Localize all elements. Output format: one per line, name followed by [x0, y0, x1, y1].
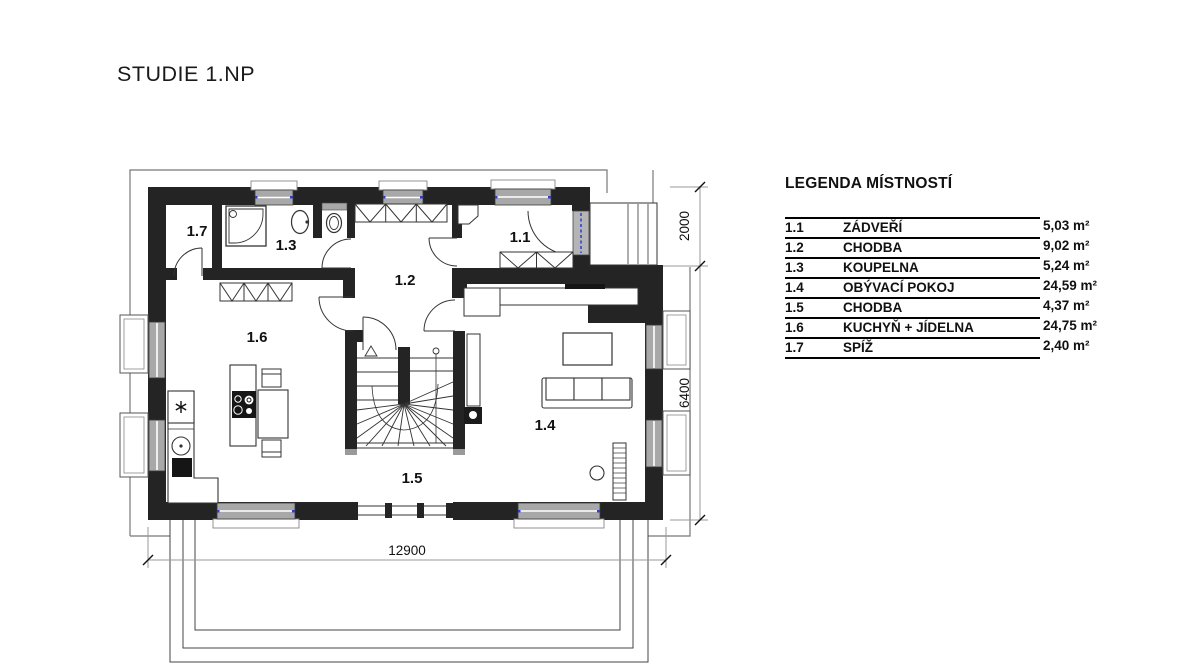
handrail-post	[433, 348, 439, 354]
corner-cabinet	[458, 205, 478, 224]
legend-row: 1.1 ZÁDVEŘÍ 5,03 m²	[785, 217, 1107, 237]
room-area: 5,24 m²	[1040, 257, 1107, 277]
room-name: ZÁDVEŘÍ	[843, 217, 1040, 237]
oven	[172, 458, 192, 477]
door-entry-hall	[429, 238, 457, 266]
washbasin	[292, 211, 309, 234]
cooktop	[232, 391, 256, 418]
kitchen-fixtures	[168, 365, 288, 503]
room-area: 24,59 m²	[1040, 277, 1107, 297]
legend-table: 1.1 ZÁDVEŘÍ 5,03 m² 1.2 CHODBA 9,02 m² 1…	[785, 217, 1107, 357]
dimension-porch-depth: 2000	[677, 211, 692, 241]
room-label-1-3: 1.3	[276, 237, 297, 254]
door-living-room	[424, 300, 455, 331]
room-area: 9,02 m²	[1040, 237, 1107, 257]
up-arrow-icon	[365, 346, 377, 356]
room-number: 1.2	[785, 237, 843, 257]
chair	[262, 440, 281, 457]
chair	[262, 369, 281, 387]
shower	[226, 206, 266, 246]
room-name: SPÍŽ	[843, 337, 1040, 357]
dimension-width: 12900	[388, 543, 426, 558]
room-number: 1.3	[785, 257, 843, 277]
legend-title: LEGENDA MÍSTNOSTÍ	[785, 176, 1107, 192]
room-label-1-7: 1.7	[187, 223, 208, 240]
terrace-outline	[170, 520, 648, 662]
coffee-table	[563, 333, 612, 365]
sideboard	[500, 288, 638, 305]
door-staircase	[363, 317, 396, 350]
room-area: 24,75 m²	[1040, 317, 1107, 337]
page: STUDIE 1.NP	[0, 0, 1180, 664]
tv	[565, 284, 605, 289]
room-name: KUCHYŇ + JÍDELNA	[843, 317, 1040, 337]
legend-row: 1.2 CHODBA 9,02 m²	[785, 237, 1107, 257]
door-bathroom	[322, 239, 351, 268]
legend-row: 1.3 KOUPELNA 5,24 m²	[785, 257, 1107, 277]
door-kitchen	[319, 297, 353, 331]
room-name: KOUPELNA	[843, 257, 1040, 277]
room-name: CHODBA	[843, 237, 1040, 257]
room-number: 1.6	[785, 317, 843, 337]
room-number: 1.1	[785, 217, 843, 237]
sliding-terrace-door	[358, 503, 453, 518]
entry-door-swing	[528, 211, 572, 255]
room-area: 5,03 m²	[1040, 217, 1107, 237]
room-legend: LEGENDA MÍSTNOSTÍ 1.1 ZÁDVEŘÍ 5,03 m² 1.…	[785, 176, 1107, 357]
legend-row: 1.7 SPÍŽ 2,40 m²	[785, 337, 1107, 357]
legend-row: 1.4 OBÝVACÍ POKOJ 24,59 m²	[785, 277, 1107, 297]
toilet	[322, 203, 347, 233]
room-label-1-1: 1.1	[510, 229, 531, 246]
room-name: OBÝVACÍ POKOJ	[843, 277, 1040, 297]
door-pantry	[174, 248, 202, 276]
dining-table	[258, 390, 288, 438]
room-number: 1.7	[785, 337, 843, 357]
radiator	[613, 443, 626, 500]
room-area: 4,37 m²	[1040, 297, 1107, 317]
room-number: 1.5	[785, 297, 843, 317]
legend-row: 1.6 KUCHYŇ + JÍDELNA 24,75 m²	[785, 317, 1107, 337]
shaft-and-chimney	[464, 334, 482, 424]
wardrobe-symbol	[355, 204, 447, 222]
wardrobe-symbol	[220, 283, 292, 301]
dimension-depth: 6400	[677, 378, 692, 408]
room-area: 2,40 m²	[1040, 337, 1107, 357]
room-number: 1.4	[785, 277, 843, 297]
legend-row: 1.5 CHODBA 4,37 m²	[785, 297, 1107, 317]
room-label-1-6: 1.6	[247, 329, 268, 346]
room-label-1-5: 1.5	[402, 470, 423, 487]
room-label-1-2: 1.2	[395, 272, 416, 289]
floor-lamp	[590, 466, 604, 480]
sofa	[542, 378, 632, 408]
room-name: CHODBA	[843, 297, 1040, 317]
wardrobe-symbol	[500, 252, 573, 268]
sideboard	[464, 288, 500, 316]
room-label-1-4: 1.4	[535, 417, 557, 434]
